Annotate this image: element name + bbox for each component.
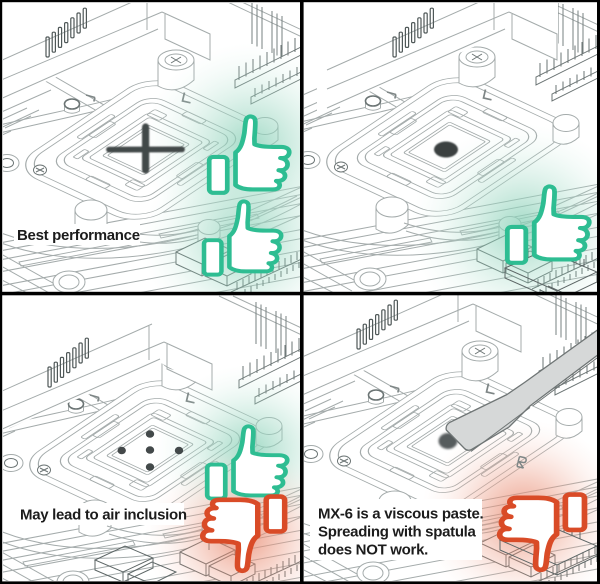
- svg-text:does NOT work.: does NOT work.: [318, 542, 428, 559]
- svg-text:Best performance: Best performance: [17, 227, 140, 244]
- svg-text:Spreading with spatula: Spreading with spatula: [318, 524, 477, 541]
- svg-text:MX-6 is a viscous paste.: MX-6 is a viscous paste.: [318, 506, 484, 523]
- svg-text:May lead to air inclusion: May lead to air inclusion: [20, 507, 187, 524]
